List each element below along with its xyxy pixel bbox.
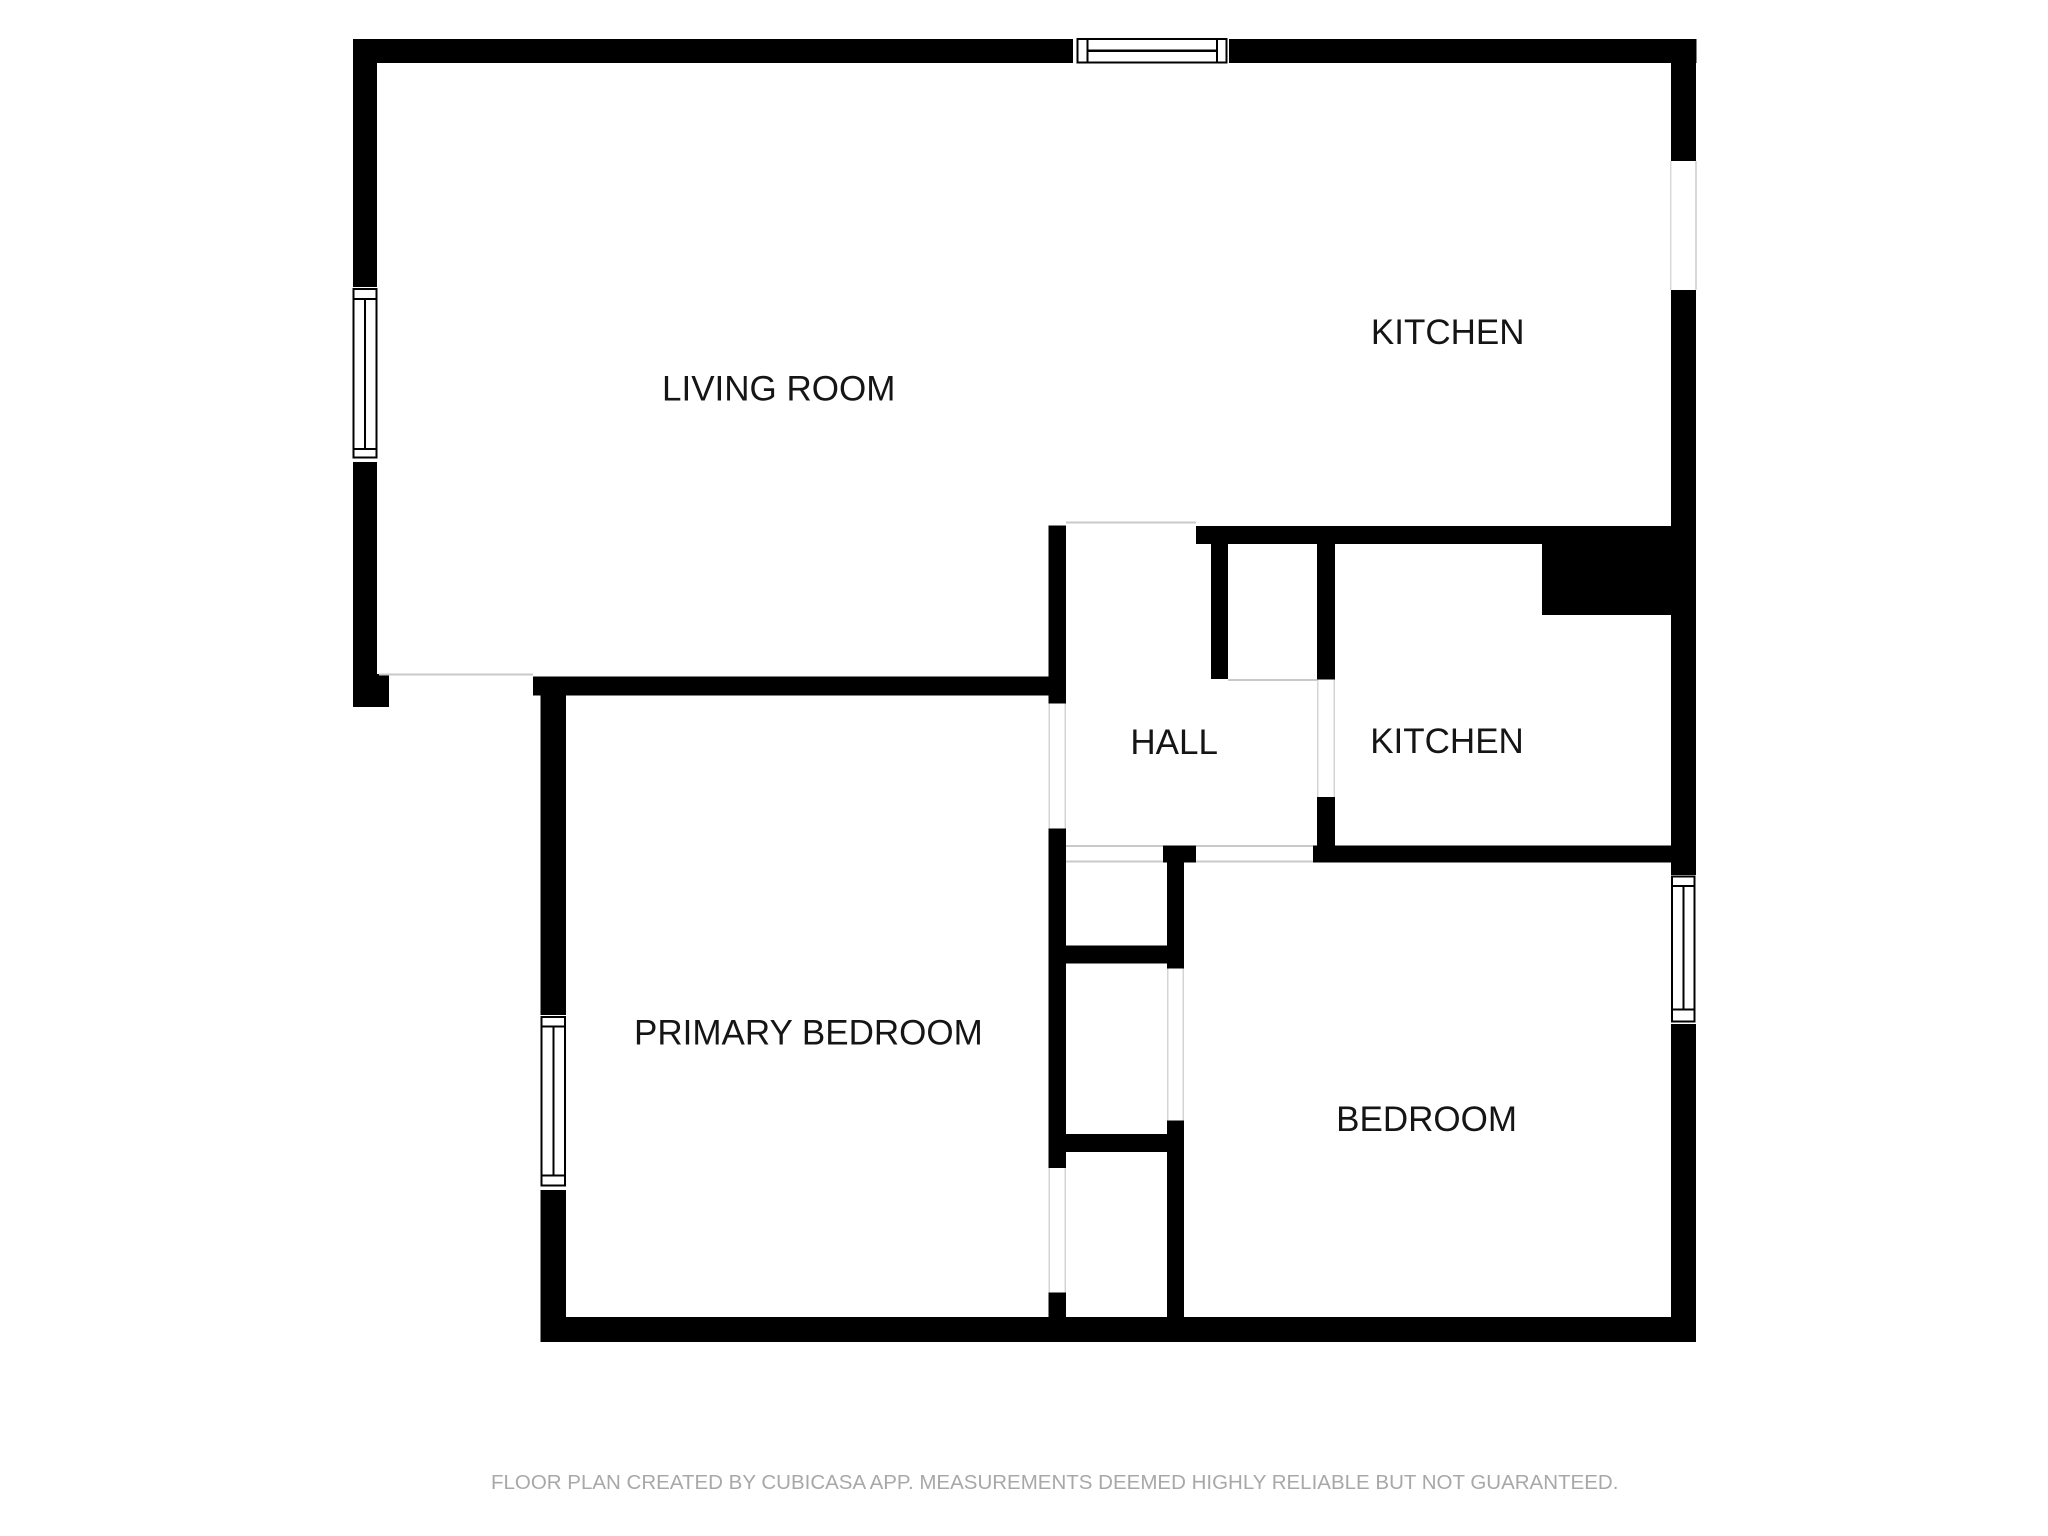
svg-text:BEDROOM: BEDROOM bbox=[1336, 1100, 1517, 1139]
svg-text:HALL: HALL bbox=[1130, 723, 1218, 762]
svg-text:KITCHEN: KITCHEN bbox=[1370, 722, 1524, 761]
svg-text:KITCHEN: KITCHEN bbox=[1371, 313, 1525, 352]
svg-text:LIVING ROOM: LIVING ROOM bbox=[662, 370, 895, 409]
svg-text:PRIMARY BEDROOM: PRIMARY BEDROOM bbox=[634, 1014, 983, 1053]
svg-text:FLOOR PLAN CREATED BY CUBICASA: FLOOR PLAN CREATED BY CUBICASA APP. MEAS… bbox=[491, 1471, 1618, 1494]
